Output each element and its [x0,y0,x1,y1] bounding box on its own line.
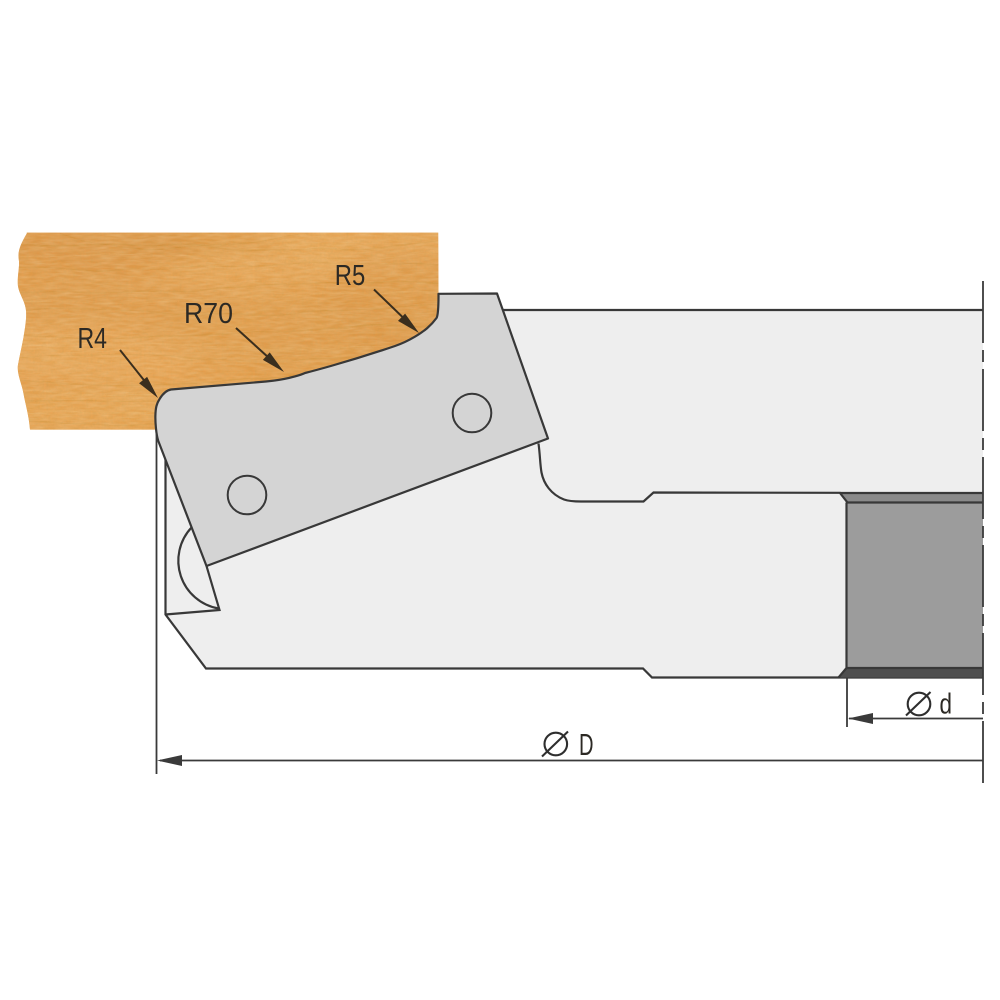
svg-text:R4: R4 [78,323,108,355]
svg-text:R70: R70 [184,298,233,330]
svg-text:R5: R5 [335,260,366,292]
svg-text:d: d [940,689,953,721]
svg-text:D: D [579,727,594,762]
